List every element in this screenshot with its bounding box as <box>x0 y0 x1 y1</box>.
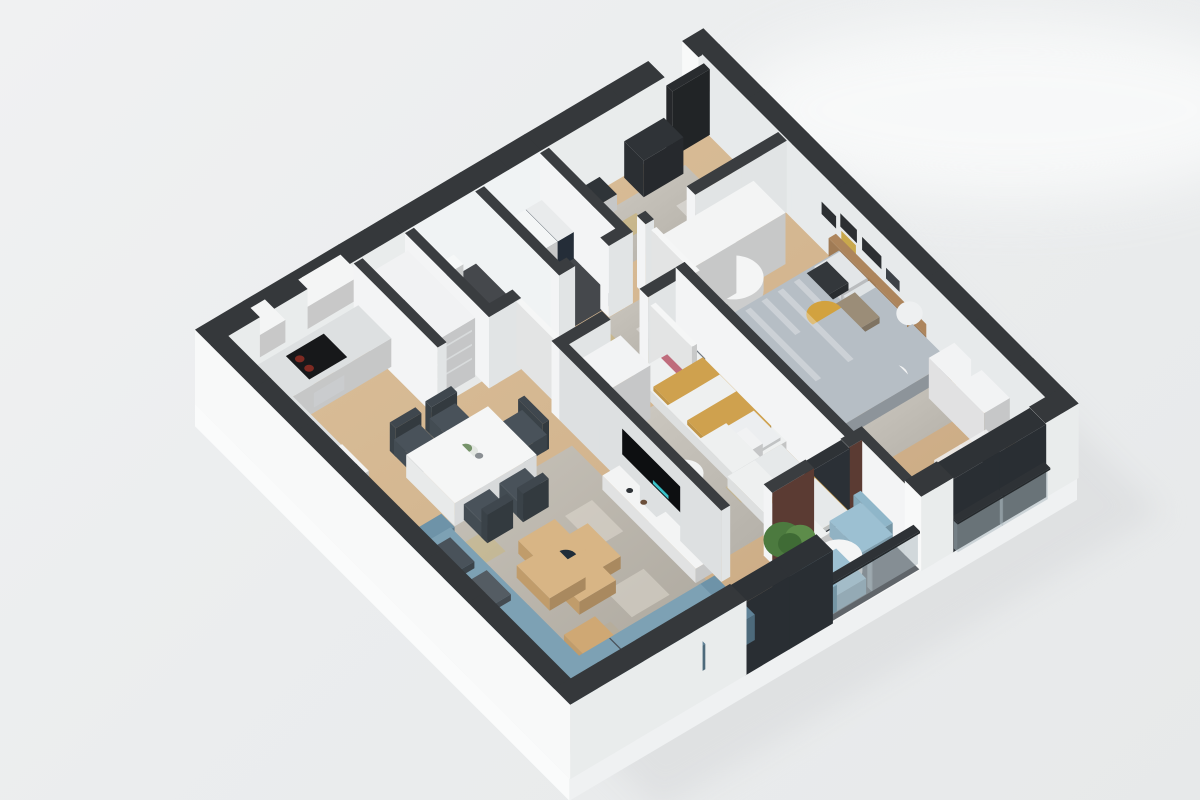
decor-item <box>640 500 647 505</box>
lamp-shade <box>896 301 922 325</box>
apartment-3d-floorplan <box>0 0 1200 800</box>
floorplan-stage <box>0 0 1200 800</box>
wall-laundry-front-b <box>600 228 625 317</box>
decor-item <box>626 488 633 493</box>
decor-item <box>640 500 647 505</box>
dining-decor <box>475 453 483 459</box>
decor-item <box>626 488 633 493</box>
burner <box>295 355 305 362</box>
burner <box>304 365 314 372</box>
burner <box>295 355 305 362</box>
lamp-shade <box>896 301 922 325</box>
dining-decor <box>475 453 483 459</box>
burner <box>304 365 314 372</box>
